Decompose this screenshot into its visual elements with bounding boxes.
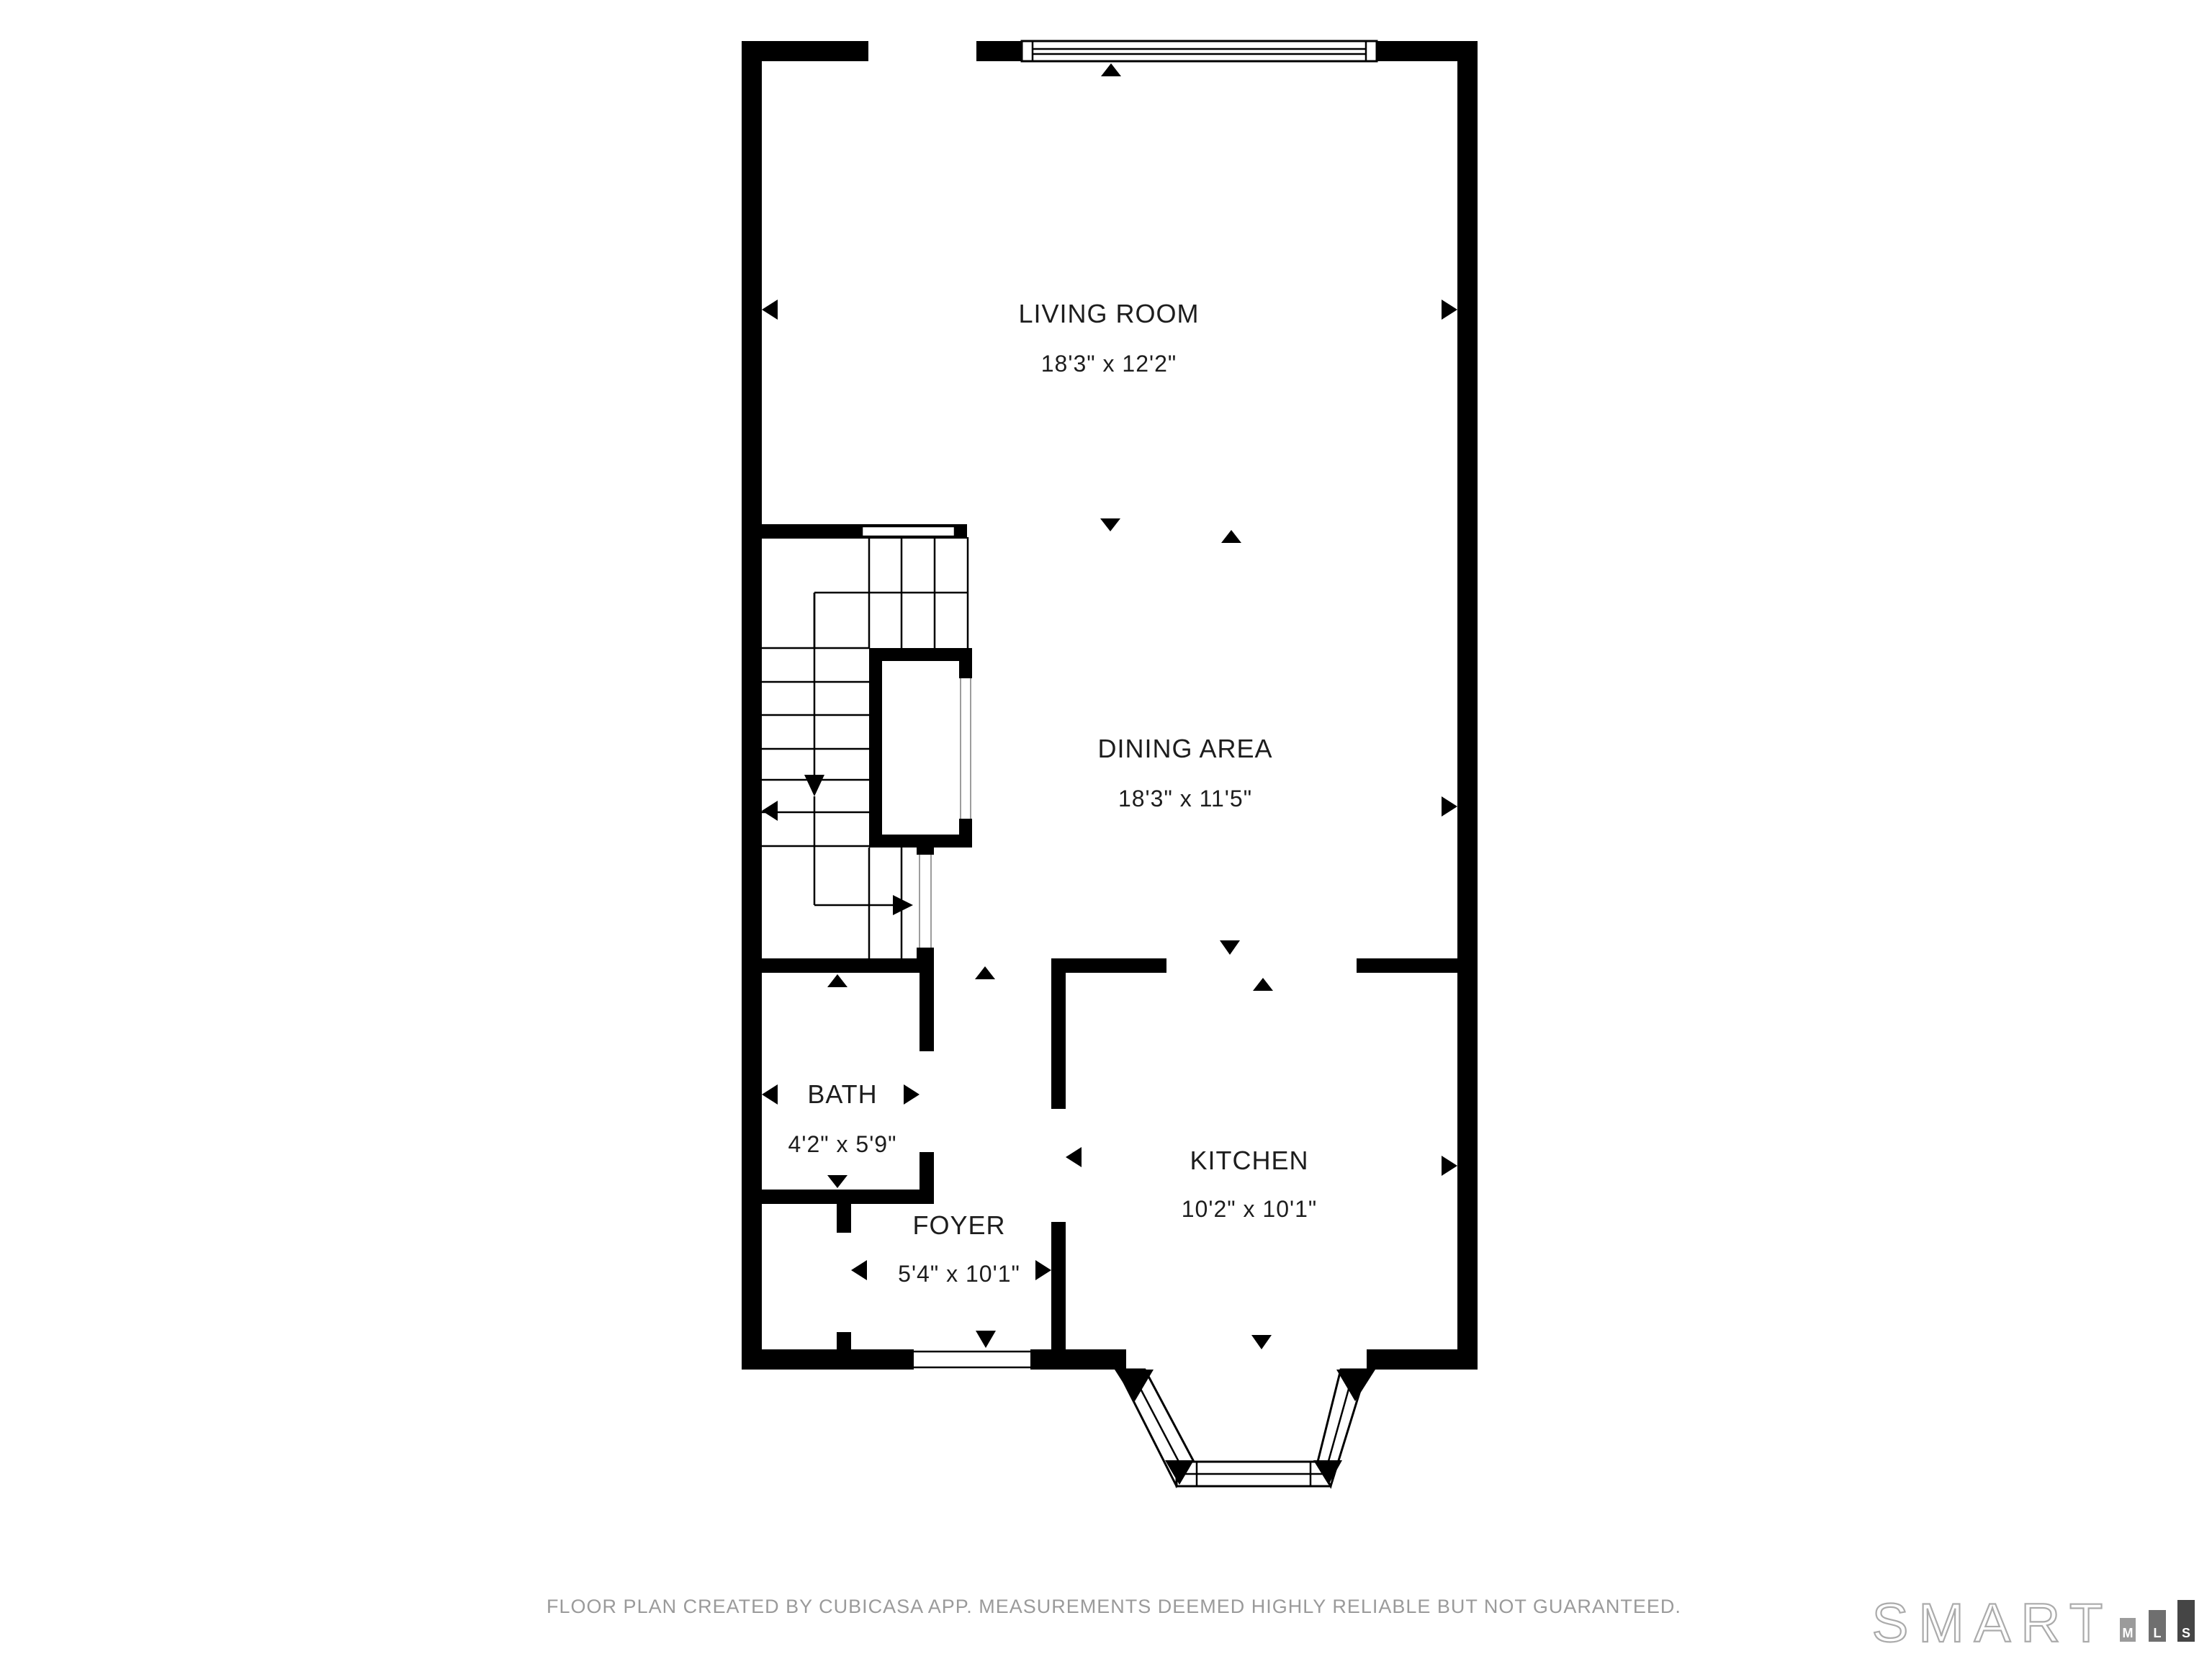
exterior-walls <box>742 41 1478 1370</box>
kitchen-left-wall-upper <box>1051 958 1066 1109</box>
marker-left-icon <box>762 801 778 821</box>
room-labels: LIVING ROOM 18'3" x 12'2" DINING AREA 18… <box>788 299 1318 1287</box>
room-dims-bath: 4'2" x 5'9" <box>788 1131 897 1157</box>
marker-down-icon <box>976 1331 996 1348</box>
marker-left-icon <box>762 1084 778 1105</box>
wall-bottom-segment <box>1030 1349 1126 1370</box>
marker-up-icon <box>975 966 995 979</box>
floor-plan-page: LIVING ROOM 18'3" x 12'2" DINING AREA 18… <box>0 0 2212 1659</box>
marker-right-icon <box>904 1084 920 1105</box>
marker-right-icon <box>1442 1156 1457 1176</box>
room-dims-dining: 18'3" x 11'5" <box>1118 786 1252 811</box>
living-room-window <box>1022 41 1377 61</box>
void-box-right-upper <box>959 648 972 678</box>
wall-right <box>1457 41 1478 1370</box>
room-label-kitchen: KITCHEN <box>1190 1146 1308 1175</box>
walk-arrow-right-icon <box>893 895 913 915</box>
wall-left <box>742 41 762 1370</box>
closet-wall-upper <box>837 1204 851 1233</box>
smartmls-wordmark: SMART <box>1872 1593 2113 1654</box>
room-label-living: LIVING ROOM <box>1018 299 1199 328</box>
stair-rail-lines <box>920 678 971 948</box>
bath-bottom-wall <box>742 1190 934 1204</box>
marker-left-icon <box>1066 1147 1082 1167</box>
marker-up-icon <box>1101 63 1121 76</box>
room-dims-kitchen: 10'2" x 10'1" <box>1182 1196 1318 1222</box>
footer-disclaimer: FLOOR PLAN CREATED BY CUBICASA APP. MEAS… <box>547 1596 1681 1617</box>
stair-rail-block-top <box>917 848 934 855</box>
room-dims-living: 18'3" x 12'2" <box>1041 351 1177 377</box>
kitchen-left-wall-lower <box>1051 1222 1066 1351</box>
marker-up-icon <box>1221 530 1241 543</box>
marker-up-icon <box>827 974 848 987</box>
void-box-right-lower <box>959 819 972 848</box>
marker-down-icon <box>1251 1335 1272 1349</box>
void-box-left <box>869 648 882 848</box>
marker-down-icon <box>1220 940 1240 955</box>
stair-wall-window <box>862 526 955 536</box>
wall-bottom-segment <box>742 1349 914 1370</box>
marker-left-icon <box>762 300 778 320</box>
room-label-foyer: FOYER <box>912 1210 1005 1240</box>
stair-rail-block-bottom <box>917 948 934 973</box>
marker-down-icon <box>827 1175 848 1188</box>
smartmls-logo: SMART M L S <box>1872 1593 2195 1654</box>
marker-right-icon <box>1442 300 1457 320</box>
room-dims-foyer: 5'4" x 10'1" <box>898 1261 1020 1287</box>
walk-arrow-down-icon <box>804 775 824 796</box>
marker-down-icon <box>1100 518 1120 531</box>
bath-top-wall <box>742 958 933 973</box>
void-box-bottom <box>869 835 972 848</box>
room-label-bath: BATH <box>807 1079 877 1109</box>
closet-wall-lower <box>837 1332 851 1351</box>
marker-right-icon <box>1442 796 1457 817</box>
logo-bar-letter-l: L <box>2154 1626 2162 1640</box>
logo-bar-letter-m: M <box>2123 1626 2134 1640</box>
stair-void-box <box>869 648 972 848</box>
void-box-top <box>869 648 972 661</box>
room-label-dining: DINING AREA <box>1097 734 1272 763</box>
stair-walk-line <box>804 593 913 915</box>
stair-treads <box>758 537 968 958</box>
wall-bottom-segment <box>1367 1349 1478 1370</box>
kitchen-top-wall-left <box>1051 958 1166 973</box>
wall-top-segment <box>976 41 1022 61</box>
marker-left-icon <box>851 1260 867 1280</box>
wall-top-segment <box>742 41 868 61</box>
marker-right-icon <box>1035 1260 1051 1280</box>
kitchen-top-wall-right <box>1357 958 1457 973</box>
logo-bar-letter-s: S <box>2182 1626 2190 1640</box>
floor-plan-canvas: LIVING ROOM 18'3" x 12'2" DINING AREA 18… <box>0 0 2212 1659</box>
marker-up-icon <box>1253 978 1273 991</box>
